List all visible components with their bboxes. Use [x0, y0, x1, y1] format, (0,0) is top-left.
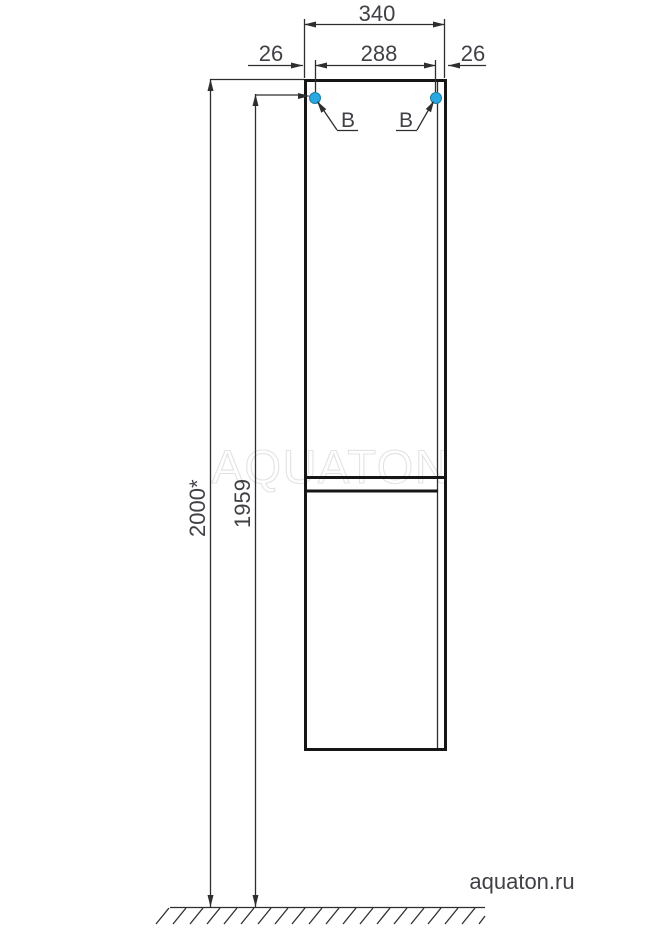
- dimension-right-inset: 26: [448, 41, 486, 69]
- dim-label-26-left: 26: [259, 41, 283, 66]
- hinge-marker-left: [310, 93, 321, 104]
- callout-label-b-right: B: [399, 109, 413, 132]
- cabinet-outline: [306, 81, 446, 750]
- dimension-hinge-span: 288: [315, 41, 436, 92]
- cabinet-elevation-drawing: AQUATON aquaton.ru 340 288 26: [0, 0, 653, 931]
- dim-label-340: 340: [359, 1, 396, 26]
- ground-hatching: [156, 908, 485, 924]
- dim-label-1959: 1959: [230, 479, 255, 528]
- dim-label-288: 288: [361, 41, 398, 66]
- callout-label-b-left: B: [341, 109, 355, 132]
- watermark-aquaton-ru: aquaton.ru: [469, 869, 574, 894]
- ground: [156, 908, 485, 925]
- dimension-left-inset: 26: [248, 41, 303, 69]
- cabinet: [306, 81, 446, 750]
- dim-label-26-right: 26: [461, 41, 485, 66]
- callout-b-right: B: [396, 101, 434, 132]
- callout-b-left: B: [317, 101, 358, 132]
- hinge-marker-right: [431, 93, 442, 104]
- technical-drawing-page: AQUATON aquaton.ru 340 288 26: [0, 0, 653, 931]
- dim-label-2000: 2000*: [185, 479, 210, 537]
- dimension-hinge-height: 1959: [230, 93, 310, 907]
